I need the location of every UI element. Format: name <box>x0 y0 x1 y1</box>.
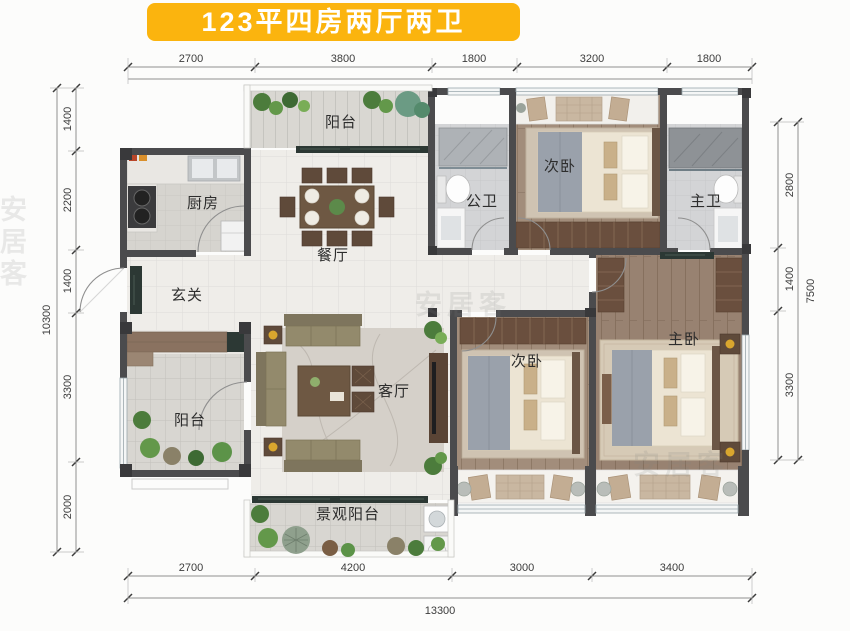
dim-bottom-3: 3000 <box>510 562 534 574</box>
dim-left-1: 1400 <box>62 107 74 131</box>
dim-left-5: 2000 <box>62 495 74 519</box>
dim-left-total: 10300 <box>41 305 53 336</box>
label-balcony-left: 阳台 <box>174 412 206 429</box>
living-room-furniture <box>256 314 448 472</box>
label-entry: 玄关 <box>171 287 203 304</box>
dim-top-4: 3200 <box>580 53 604 65</box>
table-plant <box>329 199 345 215</box>
hallway <box>428 255 589 312</box>
sofa-left-back <box>256 352 266 426</box>
bay-window <box>596 470 738 503</box>
dimension-left: 1400 2200 1400 3300 2000 10300 <box>41 84 84 556</box>
label-view-balcony: 景观阳台 <box>316 506 380 523</box>
floorplan-drawing: 阳台 厨房 餐厅 玄关 公卫 次卧 主卫 阳台 客厅 次卧 主卧 景观阳台 27… <box>0 0 850 631</box>
dim-bottom-total: 13300 <box>425 605 456 617</box>
headboard <box>652 128 660 216</box>
dim-bottom-2: 4200 <box>341 562 365 574</box>
toilet <box>437 176 446 203</box>
dim-top-5: 1800 <box>697 53 721 65</box>
label-bedroom2-top: 次卧 <box>544 158 576 175</box>
sofa-bottom-back <box>284 460 362 472</box>
dim-top-1: 2700 <box>179 53 203 65</box>
wardrobe-left <box>598 258 624 312</box>
label-public-bath: 公卫 <box>466 193 498 210</box>
dim-left-4: 3300 <box>62 375 74 399</box>
floorplan-screenshot: 123平四房两厅两卫 <box>0 0 850 631</box>
fridge <box>221 221 247 251</box>
bay-window <box>457 470 585 503</box>
wardrobe-right <box>716 258 742 312</box>
tv <box>432 362 436 434</box>
tv-console <box>429 353 448 443</box>
label-master-bath: 主卫 <box>690 193 722 210</box>
label-kitchen: 厨房 <box>187 195 219 212</box>
dimension-top: 2700 3800 1800 3200 1800 <box>124 53 756 84</box>
sofa-top-back <box>284 314 362 326</box>
dimension-right: 2800 1400 3300 7500 <box>770 118 817 464</box>
wardrobe <box>516 222 660 248</box>
dim-right-1: 2800 <box>784 173 796 197</box>
dim-right-2: 1400 <box>784 267 796 291</box>
dim-right-3: 3300 <box>784 373 796 397</box>
label-living: 客厅 <box>378 383 410 400</box>
wardrobe <box>460 318 586 344</box>
dim-bottom-1: 2700 <box>179 562 203 574</box>
label-bedroom2-bottom: 次卧 <box>511 353 543 370</box>
label-balcony-top: 阳台 <box>325 114 357 131</box>
dim-left-2: 2200 <box>62 188 74 212</box>
dim-left-3: 1400 <box>62 269 74 293</box>
headboard <box>712 346 720 450</box>
label-dining: 餐厅 <box>317 247 349 264</box>
dimension-bottom: 2700 4200 3000 3400 13300 <box>124 562 756 617</box>
headboard <box>572 352 580 454</box>
dim-bottom-4: 3400 <box>660 562 684 574</box>
dim-top-3: 1800 <box>462 53 486 65</box>
bench <box>602 374 612 424</box>
dim-top-2: 3800 <box>331 53 355 65</box>
label-master-bedroom: 主卧 <box>668 331 700 348</box>
dim-right-total: 7500 <box>805 279 817 303</box>
coffee-table <box>298 366 350 416</box>
